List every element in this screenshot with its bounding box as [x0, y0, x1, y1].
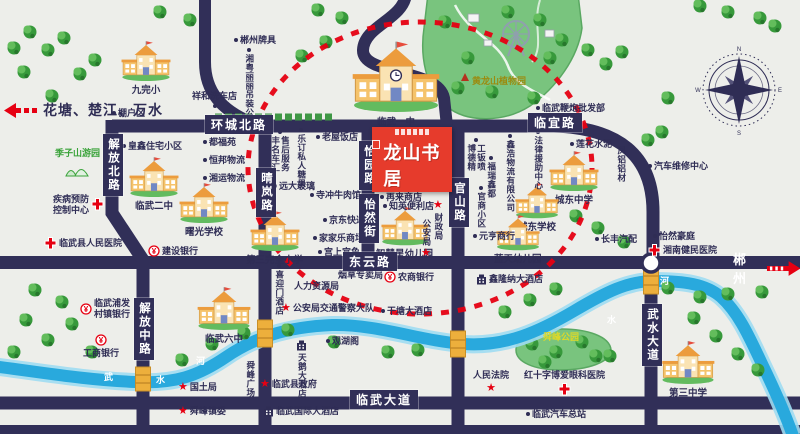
school-label: 城东中学 [555, 192, 593, 206]
map-poi: 湘南健民医院 [648, 244, 717, 257]
school-label: 临武一中 [377, 114, 415, 128]
star-icon: ★ [260, 379, 270, 390]
dot-icon [310, 193, 314, 197]
map-poi: 临武汽车总站 [526, 409, 586, 420]
poi-label: 临武汽车总站 [532, 409, 586, 420]
poi-label: 博德精 工钣喷 [466, 144, 486, 171]
dot-icon [595, 237, 599, 241]
poi-label: 工商银行 [83, 348, 119, 359]
poi-label: 天鹅大酒店 [297, 353, 307, 398]
poi-label: 舜峰公园 [543, 332, 579, 343]
map-poi: 远大玻璃 [273, 181, 315, 192]
poi-label: 临武浦发 村镇银行 [94, 298, 130, 320]
map-poi: 丰名车汇 售后服务 [270, 130, 290, 172]
poi-label: 鑫浩物流有限公司 [505, 140, 515, 212]
location-map: N S W E 郴州牌具湘粤丽丽吊装公司祥和洗车店棚户区临武鞭炮批发部黄龙山植物… [0, 0, 800, 434]
poi-label: 建设银行 [162, 246, 198, 257]
poi-label: 农商银行 [398, 272, 434, 283]
school-marker: 第三完全小学 [246, 210, 303, 266]
road-label: 晴岚路 [256, 168, 276, 217]
map-poi: 临武县人民医院 [44, 237, 122, 250]
poi-label: 公安局 [421, 219, 431, 246]
map-poi: 都福苑 [203, 137, 236, 148]
dot-icon [318, 250, 322, 254]
school-icon [350, 40, 442, 115]
star-icon: ★ [281, 303, 291, 314]
map-poi: ¥农商银行 [384, 271, 434, 283]
poi-label: 湘运物流 [209, 173, 245, 184]
map-poi: 郴州牌具 [234, 35, 276, 46]
school-marker: 临武六中 [196, 286, 252, 345]
road-label: 怡然街 [359, 194, 379, 243]
poi-label: 法律援助中心 [533, 136, 543, 190]
road-label: 环城北路 [205, 115, 273, 134]
project-name: 龙山书居 [372, 139, 452, 191]
dot-icon [234, 38, 238, 42]
map-poi: 博德精 工钣喷 [466, 138, 486, 171]
school-label: 蓝天幼儿园 [494, 251, 542, 265]
road-label: 官山路 [449, 178, 469, 227]
poi-label: 人力资源局 [294, 281, 339, 292]
dot-icon [508, 134, 512, 138]
direction-sign-east: 郴州 [733, 249, 800, 287]
school-label: 第三中学 [669, 385, 707, 399]
poi-label: 莲花水泥 [576, 139, 612, 150]
poi-label: 临武县政府 [272, 379, 317, 390]
park-icon [65, 161, 91, 177]
poi-label: 官商小区 [476, 192, 486, 228]
dot-icon [536, 106, 540, 110]
school-label: 临武二中 [135, 198, 173, 212]
map-poi: 皇鑫住宅小区 [122, 141, 182, 152]
poi-label: 财政局 [433, 213, 443, 240]
map-poi: ¥临武浦发 村镇银行 [80, 298, 130, 320]
map-poi: 人力资源局 [294, 281, 339, 292]
bank-icon: ¥ [80, 303, 92, 315]
west-sign-label: 花塘、楚江、万水 [43, 100, 163, 120]
bank-icon: ¥ [148, 245, 160, 257]
road-label: 解放中路 [134, 298, 154, 360]
poi-label: 家家乐商场 [319, 233, 364, 244]
dot-icon [278, 130, 282, 134]
poi-label: 国土局 [190, 382, 217, 393]
poi-label: 皇鑫住宅小区 [128, 141, 182, 152]
bank-icon: ¥ [95, 334, 107, 346]
school-label: 曙光学校 [185, 224, 223, 238]
poi-label: 临武县人民医院 [59, 238, 122, 249]
river-label: 水 [607, 313, 616, 326]
school-icon [120, 40, 172, 83]
poi-label: 人民法院 [473, 370, 509, 381]
poi-label: 元亨商行 [479, 231, 515, 242]
dot-icon [489, 156, 493, 160]
school-icon [128, 156, 180, 199]
map-poi: ★财政局 [433, 200, 443, 240]
river-label: 武 [104, 370, 113, 383]
river-label: 河 [196, 354, 205, 367]
poi-label: 郴州牌具 [240, 35, 276, 46]
school-label: 临武六中 [205, 331, 243, 345]
poi-label: 观湖阁 [332, 336, 359, 347]
poi-label: 疾病预防 控制中心 [53, 194, 89, 216]
svg-text:¥: ¥ [388, 273, 393, 282]
cross-icon [648, 244, 661, 257]
poi-label: 干塘大酒店 [387, 306, 432, 317]
map-poi: 黄龙山植物园 [472, 76, 526, 87]
dot-icon [299, 128, 303, 132]
poi-label: 公安局交通警察大队 [293, 303, 374, 314]
bank-icon: ¥ [384, 271, 396, 283]
map-poi: 官商小区 [476, 186, 486, 228]
dot-icon [277, 264, 281, 268]
school-marker: 九完小 [120, 40, 172, 96]
school-label: 九完小 [132, 82, 161, 96]
map-poi: ¥工商银行 [83, 334, 119, 359]
school-marker: 临武一中 [350, 40, 442, 128]
project-name-text: 龙山书居 [383, 139, 452, 191]
poi-label: 湘南健民医院 [663, 245, 717, 256]
project-block: 龙山书居 [372, 127, 452, 192]
east-arrow-icon [765, 261, 800, 276]
map-poi: 季子山游园 [55, 148, 100, 177]
poi-label: 鑫隆纳大酒店 [489, 274, 543, 285]
map-poi: 老屋饭店 [316, 132, 358, 143]
dot-icon [323, 218, 327, 222]
map-poi: 祥和洗车店 [192, 91, 237, 108]
hotel-icon [296, 340, 307, 351]
road-label: 武水大道 [642, 304, 662, 366]
school-marker: 曙光学校 [178, 182, 230, 238]
school-icon [196, 286, 252, 332]
poi-label: 舜峰广场 [245, 361, 255, 397]
poi-label: 怡然豪庭 [659, 231, 695, 242]
map-poi: 湘运物流 [203, 173, 245, 184]
map-poi: 凤铝铝材 [616, 146, 626, 182]
cross-icon [558, 383, 571, 396]
poi-label: 汽车维修中心 [654, 161, 708, 172]
dot-icon [479, 186, 483, 190]
poi-label: 都福苑 [209, 137, 236, 148]
dot-icon [526, 412, 530, 416]
road-label: 解放北路 [103, 134, 123, 196]
school-marker: 临武二中 [128, 156, 180, 212]
map-poi: 知英便利店 [383, 201, 434, 212]
river-label: 水 [156, 373, 165, 386]
road-label: 临宜路 [528, 113, 582, 132]
svg-text:¥: ¥ [84, 305, 89, 314]
map-poi: 恒邦物流 [203, 155, 245, 166]
map-poi: 观湖阁 [326, 336, 359, 347]
cross-icon [44, 237, 57, 250]
poi-label: 恒邦物流 [209, 155, 245, 166]
dot-icon [648, 164, 652, 168]
school-icon [660, 340, 716, 386]
dot-icon [326, 339, 330, 343]
poi-label: 老屋饭店 [322, 132, 358, 143]
hotel-icon [476, 274, 487, 285]
dot-icon [203, 176, 207, 180]
star-icon: ★ [421, 248, 431, 259]
map-poi: ★国土局 [178, 382, 217, 393]
east-sign-label: 郴州 [733, 249, 761, 287]
dot-icon [313, 236, 317, 240]
labels-layer: 郴州牌具湘粤丽丽吊装公司祥和洗车店棚户区临武鞭炮批发部黄龙山植物园季子山游园皇鑫… [0, 0, 800, 434]
map-poi: 舜峰公园 [543, 332, 579, 343]
developer-logo [395, 129, 429, 135]
star-icon: ★ [433, 200, 443, 211]
map-poi: 寺冲牛肉馆 [310, 190, 361, 201]
star-icon: ★ [178, 382, 188, 393]
road-label: 临武大道 [350, 390, 418, 409]
map-poi: ★舜峰镇委 [178, 406, 226, 417]
map-poi: 长丰汽配 [595, 234, 637, 245]
poi-label: 丰名车汇 售后服务 [270, 136, 290, 172]
hotel-icon [263, 406, 274, 417]
poi-label: 祥和洗车店 [192, 91, 237, 102]
direction-sign-west: 花塘、楚江、万水 [4, 100, 163, 120]
map-poi: 家家乐商场 [313, 233, 364, 244]
map-poi: 法律援助中心 [533, 130, 543, 190]
dot-icon [213, 104, 217, 108]
map-poi: 临武国际大酒店 [263, 406, 339, 417]
poi-label: 福瑞鑫都 [486, 162, 496, 198]
svg-text:¥: ¥ [99, 336, 104, 345]
map-poi: ★公安局交通警察大队 [281, 303, 374, 314]
map-poi: ¥建设银行 [148, 245, 198, 257]
svg-text:¥: ¥ [152, 247, 157, 256]
map-poi: 鑫隆纳大酒店 [476, 274, 543, 285]
map-poi: 元亨商行 [473, 231, 515, 242]
poi-label: 季子山游园 [55, 148, 100, 159]
map-poi: 烟草专卖局 [338, 270, 383, 281]
star-icon: ★ [178, 406, 188, 417]
map-poi: 莲花水泥 [570, 139, 612, 150]
poi-label: 烟草专卖局 [338, 270, 383, 281]
map-poi: 福瑞鑫都 [486, 156, 496, 198]
dot-icon [653, 234, 657, 238]
dot-icon [473, 234, 477, 238]
dot-icon [316, 135, 320, 139]
poi-label: 红十字博爱眼科医院 [524, 370, 605, 381]
river-label: 河 [660, 274, 669, 287]
dot-icon [474, 138, 478, 142]
map-poi: 疾病预防 控制中心 [53, 194, 104, 216]
dot-icon [203, 158, 207, 162]
road-label: 东云路 [343, 252, 397, 271]
map-poi: 怡然豪庭 [653, 231, 695, 242]
school-icon [178, 182, 230, 225]
map-poi: 汽车维修中心 [648, 161, 708, 172]
poi-label: 知英便利店 [389, 201, 434, 212]
map-poi: 舜峰广场 [245, 361, 255, 397]
map-poi: 公安局★ [421, 219, 431, 259]
dot-icon [570, 142, 574, 146]
dot-icon [247, 48, 251, 52]
dot-icon [381, 309, 385, 313]
poi-label: 寺冲牛肉馆 [316, 190, 361, 201]
poi-label: 凤铝铝材 [616, 146, 626, 182]
dot-icon [203, 140, 207, 144]
poi-label: 长丰汽配 [601, 234, 637, 245]
star-icon: ★ [486, 383, 496, 394]
map-poi: 鑫浩物流有限公司 [505, 134, 515, 212]
map-poi: 干塘大酒店 [381, 306, 432, 317]
west-arrow-icon [4, 103, 38, 118]
seal-icon [372, 140, 380, 149]
map-poi: 红十字博爱眼科医院 [524, 370, 605, 396]
dot-icon [380, 195, 384, 199]
cross-icon [91, 198, 104, 211]
poi-label: 舜峰镇委 [190, 406, 226, 417]
poi-label: 临武国际大酒店 [276, 406, 339, 417]
school-marker: 第三中学 [660, 340, 716, 399]
poi-label: 黄龙山植物园 [472, 76, 526, 87]
poi-label: 乐订私人糖果 [296, 134, 306, 188]
dot-icon [383, 204, 387, 208]
map-poi: ★临武县政府 [260, 379, 317, 390]
map-poi: 人民法院★ [473, 370, 509, 394]
map-poi: 乐订私人糖果 [296, 128, 306, 188]
